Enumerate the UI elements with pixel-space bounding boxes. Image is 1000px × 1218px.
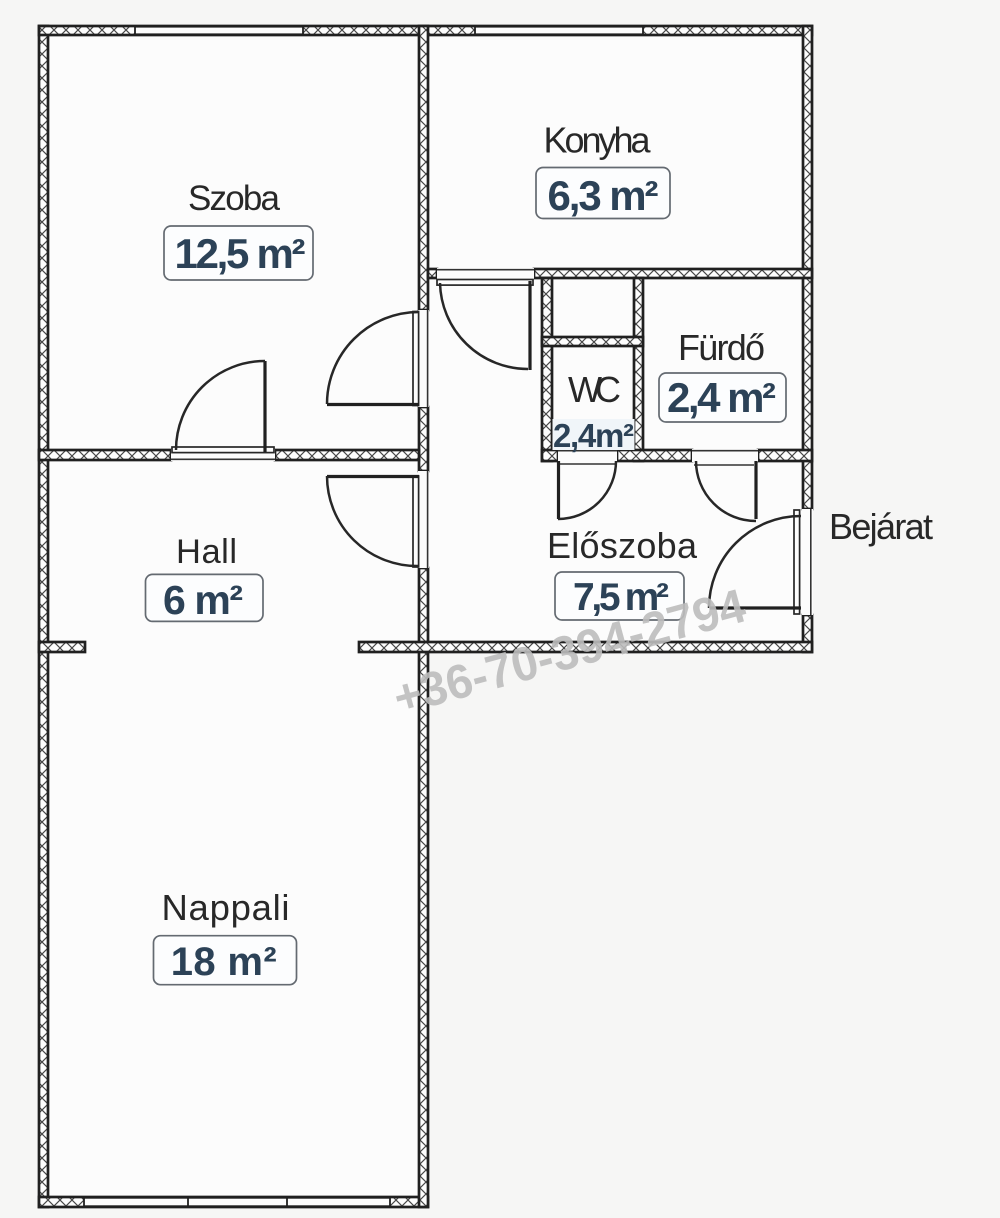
svg-text:Bejárat: Bejárat: [829, 506, 933, 547]
svg-text:Konyha: Konyha: [544, 120, 652, 161]
svg-text:WC: WC: [568, 369, 621, 410]
svg-text:6,3 m²: 6,3 m²: [548, 172, 659, 219]
svg-text:2,4m²: 2,4m²: [553, 417, 634, 454]
svg-text:Fürdő: Fürdő: [678, 327, 765, 368]
svg-text:Szoba: Szoba: [188, 179, 281, 218]
svg-text:2,4 m²: 2,4 m²: [667, 374, 776, 421]
svg-text:12,5 m²: 12,5 m²: [175, 230, 306, 277]
svg-text:Előszoba: Előszoba: [547, 525, 698, 566]
svg-text:6 m²: 6 m²: [163, 577, 243, 623]
svg-text:Nappali: Nappali: [162, 887, 290, 928]
svg-text:Hall: Hall: [176, 533, 237, 571]
svg-text:18 m²: 18 m²: [171, 940, 277, 984]
